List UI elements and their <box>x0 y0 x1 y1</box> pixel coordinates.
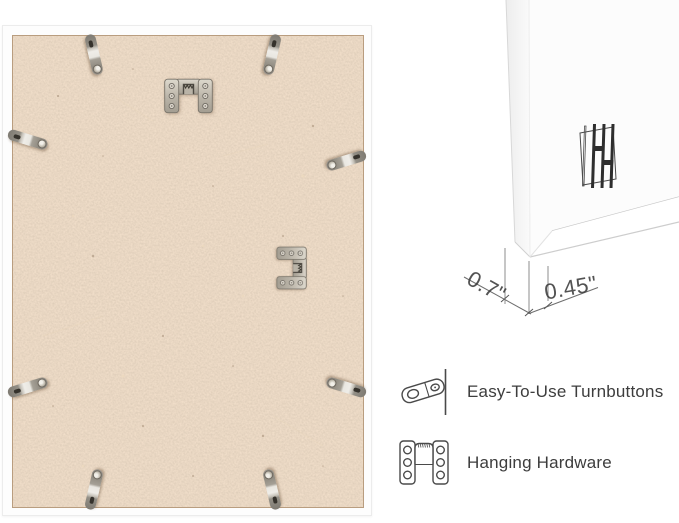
hanging-hardware-middle <box>276 246 308 289</box>
product-image: 0.7" 0.45" Easy-To-Use Turnbuttons <box>0 0 679 523</box>
hanging-hardware-icon <box>399 438 455 488</box>
turnbutton-icon <box>399 369 455 415</box>
legend-label-hanging-hardware: Hanging Hardware <box>467 453 612 473</box>
legend-label-turnbuttons: Easy-To-Use Turnbuttons <box>467 382 663 402</box>
hanging-hardware-top <box>164 78 213 114</box>
face-dimension-label: 0.45" <box>542 271 599 305</box>
corner-detail-diagram: 0.7" 0.45" <box>430 0 679 335</box>
legend-item-hanging-hardware: Hanging Hardware <box>399 438 612 488</box>
frame-side-surface <box>506 0 530 257</box>
depth-dimension-label: 0.7" <box>463 266 510 307</box>
legend-item-turnbuttons: Easy-To-Use Turnbuttons <box>399 369 663 415</box>
frame-back-photo <box>2 25 372 516</box>
